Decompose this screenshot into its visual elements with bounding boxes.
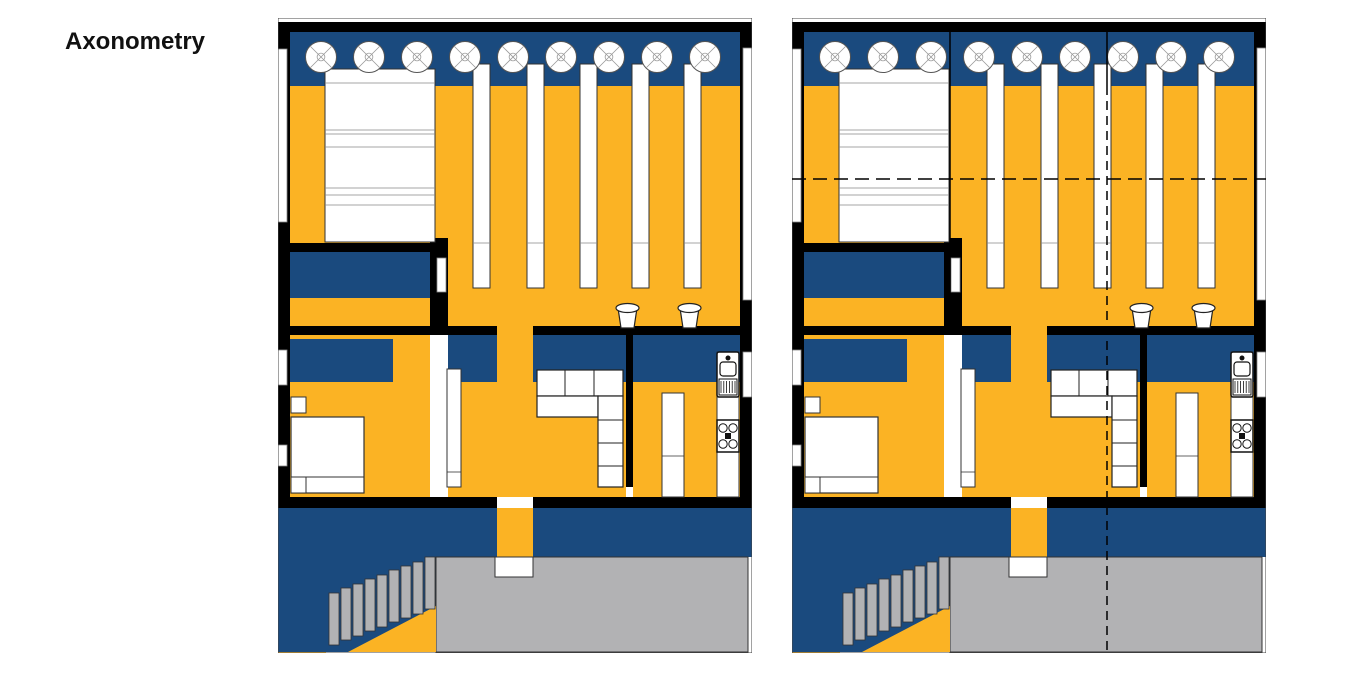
window-right-sink xyxy=(1257,352,1266,397)
stair-step xyxy=(353,584,363,636)
terrace-slab xyxy=(436,557,748,652)
skylight xyxy=(1012,42,1043,73)
floor-plan-right xyxy=(792,18,1266,653)
doormat xyxy=(495,557,533,577)
skylight xyxy=(306,42,337,73)
sofa-back xyxy=(537,370,623,396)
skylight xyxy=(642,42,673,73)
stair-step xyxy=(867,584,877,636)
skylight xyxy=(498,42,529,73)
sofa-seat xyxy=(1051,396,1112,417)
stair-step xyxy=(879,579,889,631)
stair-step xyxy=(843,593,853,645)
window-left-mid xyxy=(278,350,287,385)
tatami-bed xyxy=(839,69,949,242)
shelf-bar xyxy=(632,64,649,288)
skylight xyxy=(916,42,947,73)
shelf-bar xyxy=(1146,64,1163,288)
top-wall xyxy=(795,22,1263,32)
kitchen-sink xyxy=(717,352,739,397)
sofa-seat xyxy=(537,396,598,417)
kitchen-sink xyxy=(1231,352,1253,397)
terrace-slab xyxy=(950,557,1262,652)
window-left-upper xyxy=(792,49,801,222)
skylight xyxy=(1060,42,1091,73)
wall-bottom-left xyxy=(792,497,1011,508)
door-wardrobe xyxy=(437,258,446,292)
skylight xyxy=(1108,42,1139,73)
shelf-bar xyxy=(527,64,544,288)
nightstand xyxy=(805,397,820,413)
shelf-bar xyxy=(473,64,490,288)
wall-bottom-left xyxy=(278,497,497,508)
stair-step xyxy=(341,588,351,640)
bedhead-band xyxy=(804,339,907,382)
kitchen-stove xyxy=(717,420,739,452)
shelf-bar xyxy=(580,64,597,288)
skylight xyxy=(546,42,577,73)
stair-step xyxy=(927,562,937,614)
shelf-bar xyxy=(684,64,701,288)
skylight xyxy=(820,42,851,73)
stair-step xyxy=(855,588,865,640)
wall-living-kitchen xyxy=(626,335,633,487)
tatami-bed xyxy=(325,69,435,242)
door-wardrobe xyxy=(951,258,960,292)
corridor-lower xyxy=(497,508,533,557)
wall-mid-right xyxy=(1047,326,1266,335)
wall-bottom-right xyxy=(1047,497,1266,508)
page: Axonometry xyxy=(0,0,1360,680)
stair-step xyxy=(939,557,949,609)
stair-step xyxy=(891,575,901,627)
kitchen-stove xyxy=(1231,420,1253,452)
tall-cabinet xyxy=(662,393,684,497)
skylight xyxy=(690,42,721,73)
doormat xyxy=(1009,557,1047,577)
wall-bottom-right xyxy=(533,497,752,508)
stair-step xyxy=(903,570,913,622)
window-right-upper xyxy=(743,48,752,300)
shelf-bar xyxy=(987,64,1004,288)
sofa-arm xyxy=(1112,396,1137,487)
nightstand xyxy=(291,477,306,493)
bedhead-band xyxy=(290,339,393,382)
skylight xyxy=(1204,42,1235,73)
window-left-upper xyxy=(278,49,287,222)
skylight xyxy=(450,42,481,73)
window-left-lower xyxy=(792,445,801,466)
stair-step xyxy=(425,557,435,609)
skylight xyxy=(594,42,625,73)
window-right-sink xyxy=(743,352,752,397)
skylight xyxy=(402,42,433,73)
window-left-mid xyxy=(792,350,801,385)
stair-step xyxy=(401,566,411,618)
wall-living-kitchen xyxy=(1140,335,1147,487)
wardrobe-unit xyxy=(804,252,949,298)
shelf-bar xyxy=(1094,64,1111,288)
shelf-bar xyxy=(1041,64,1058,288)
nightstand xyxy=(291,397,306,413)
stair-step xyxy=(915,566,925,618)
wall-mid-right xyxy=(533,326,752,335)
skylight xyxy=(964,42,995,73)
stair-step xyxy=(377,575,387,627)
wall-bed-hall-h xyxy=(278,243,448,252)
sofa-arm xyxy=(598,396,623,487)
corridor-lower xyxy=(1011,508,1047,557)
nightstand xyxy=(805,477,820,493)
page-title: Axonometry xyxy=(65,28,205,56)
wall-mid-left xyxy=(792,326,1011,335)
corridor-floor xyxy=(1011,288,1047,497)
stair-step xyxy=(389,570,399,622)
skylight xyxy=(868,42,899,73)
floor-plan-left xyxy=(278,18,752,653)
wardrobe-unit xyxy=(290,252,435,298)
wall-bed-hall-h xyxy=(792,243,962,252)
window-left-lower xyxy=(278,445,287,466)
wall-mid-left xyxy=(278,326,497,335)
stair-step xyxy=(413,562,423,614)
top-wall xyxy=(281,22,749,32)
tall-cabinet xyxy=(1176,393,1198,497)
door-leaf xyxy=(961,369,975,487)
window-right-upper xyxy=(1257,48,1266,300)
stair-step xyxy=(329,593,339,645)
corridor-floor xyxy=(497,288,533,497)
stair-step xyxy=(365,579,375,631)
sofa-back xyxy=(1051,370,1137,396)
shelf-bar xyxy=(1198,64,1215,288)
skylight xyxy=(1156,42,1187,73)
door-leaf xyxy=(447,369,461,487)
skylight xyxy=(354,42,385,73)
